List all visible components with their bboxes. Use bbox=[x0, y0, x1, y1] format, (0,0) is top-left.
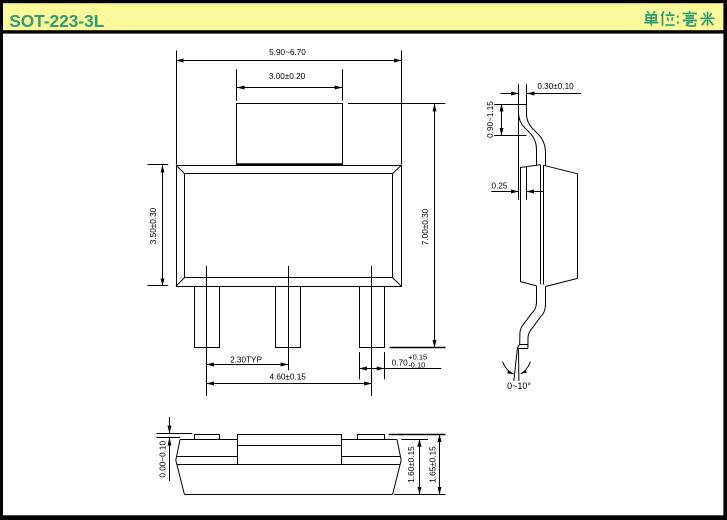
svg-text:-0.10: -0.10 bbox=[408, 360, 425, 369]
svg-text:0.30±0.10: 0.30±0.10 bbox=[537, 82, 574, 91]
svg-text:3.50±0.30: 3.50±0.30 bbox=[149, 207, 158, 244]
svg-text:2.30TYP: 2.30TYP bbox=[230, 355, 262, 364]
svg-text:0.25: 0.25 bbox=[492, 182, 508, 191]
svg-text:5.90~6.70: 5.90~6.70 bbox=[269, 48, 306, 57]
svg-text:0~10°: 0~10° bbox=[507, 381, 531, 391]
svg-text:3.00±0.20: 3.00±0.20 bbox=[269, 72, 306, 81]
svg-text:1.65±0.15: 1.65±0.15 bbox=[429, 446, 438, 483]
svg-text:SOT-223-3L: SOT-223-3L bbox=[9, 11, 105, 31]
svg-text:0.00~0.10: 0.00~0.10 bbox=[158, 441, 167, 478]
svg-text:0.70: 0.70 bbox=[392, 358, 408, 367]
svg-text:0.90~1.15: 0.90~1.15 bbox=[486, 101, 495, 138]
svg-text:4.60±0.15: 4.60±0.15 bbox=[270, 373, 307, 382]
svg-text:1.60±0.15: 1.60±0.15 bbox=[407, 446, 416, 483]
svg-text:7.00±0.30: 7.00±0.30 bbox=[421, 208, 430, 245]
